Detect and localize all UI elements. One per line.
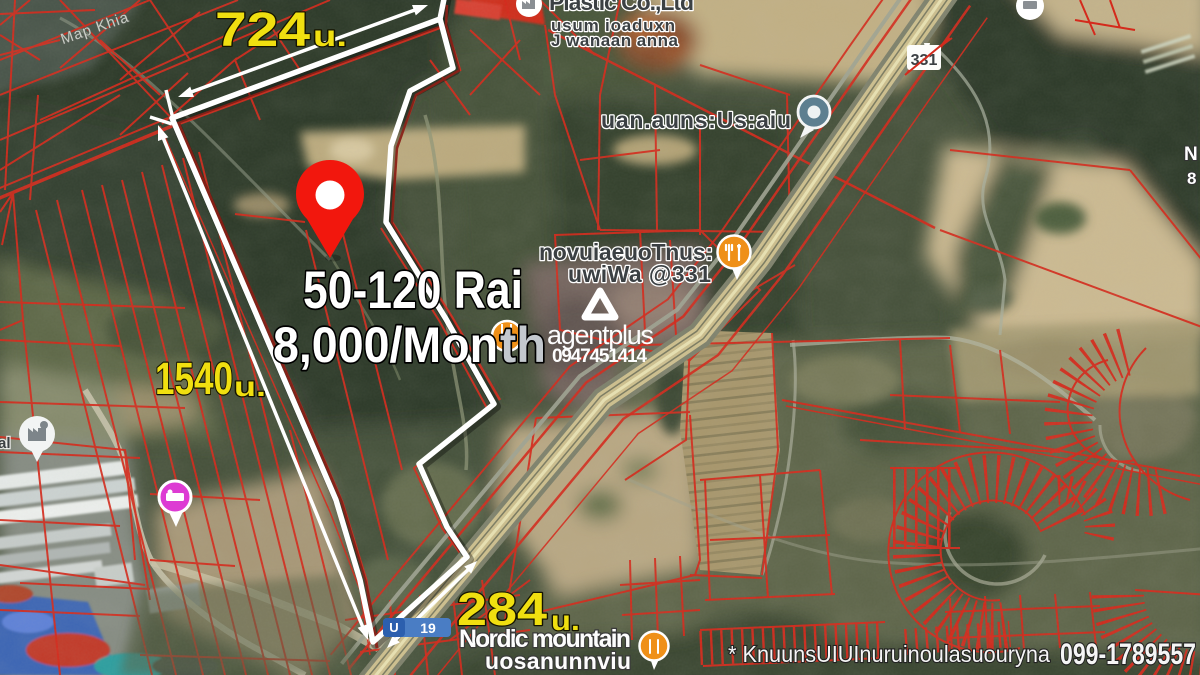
svg-text:724: 724 <box>215 4 310 57</box>
svg-text:8,000/Mon: 8,000/Mon <box>273 317 498 373</box>
svg-text:50-120 Rai: 50-120 Rai <box>303 261 523 320</box>
svg-text:uosanunnviu: uosanunnviu <box>485 648 631 674</box>
svg-text:u.: u. <box>551 605 580 636</box>
svg-text:19: 19 <box>420 620 436 636</box>
svg-text:1540: 1540 <box>155 353 233 404</box>
svg-text:N: N <box>1184 144 1198 165</box>
svg-text:0947451414: 0947451414 <box>552 346 647 367</box>
svg-text:al: al <box>0 435 11 452</box>
svg-text:Plastic Co.,Ltd: Plastic Co.,Ltd <box>549 0 694 15</box>
svg-text:uwiWa @331: uwiWa @331 <box>568 261 711 287</box>
svg-text:099-1789557: 099-1789557 <box>1060 638 1196 671</box>
svg-text:8: 8 <box>1187 169 1196 188</box>
svg-text:U: U <box>389 620 398 635</box>
svg-text:th: th <box>500 317 546 373</box>
svg-text:uan.auns:Us:aiu: uan.auns:Us:aiu <box>601 107 791 133</box>
svg-text:* KnuunsUIUInuruinoulasuouryna: * KnuunsUIUInuruinoulasuouryna <box>728 641 1050 667</box>
svg-text:284: 284 <box>457 583 547 635</box>
svg-text:u.: u. <box>313 20 347 53</box>
svg-text:u.: u. <box>234 371 266 402</box>
svg-text:J wanaan anna: J wanaan anna <box>551 31 679 50</box>
